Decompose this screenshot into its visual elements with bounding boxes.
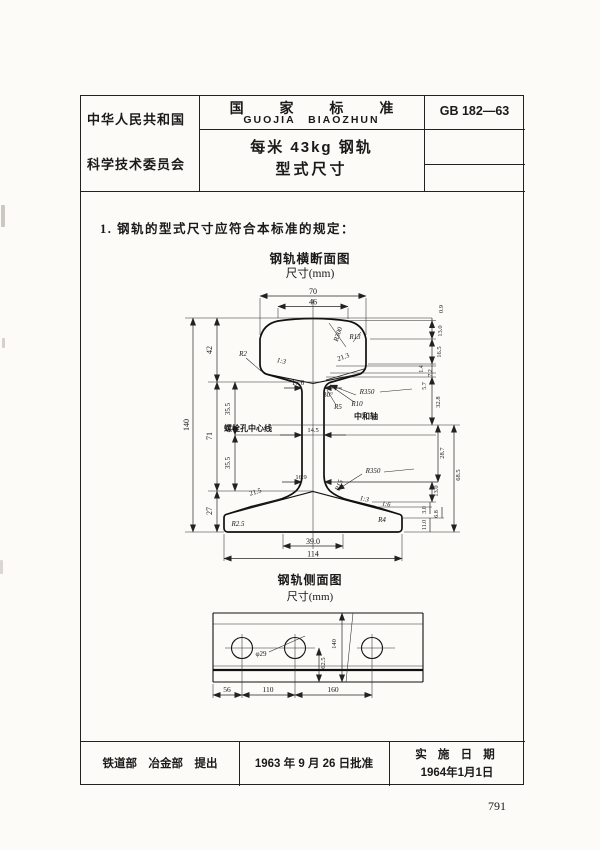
dim-label: 71 [205,432,214,440]
dim-label: 68.5 [455,469,462,480]
side-view-dim-labels: φ2962.514056110160 [223,639,339,694]
dim-label: R2.5 [230,520,245,528]
dim-label: 21.3 [336,351,351,363]
dim-label: 3.0 [422,506,428,514]
dim-label: R10 [350,400,363,408]
standard-label-pinyin: GUOJIA BIAOZHUN [199,114,424,126]
doc-title-line1: 每米 43kg 钢轨 [199,136,424,157]
dim-label: 46 [309,298,317,307]
dim-label: 35.5 [224,402,232,415]
dim-label: 110 [263,685,274,694]
dim-label: 5.7 [422,382,428,390]
dim-label: R13 [348,333,361,341]
dim-label: 39.0 [306,537,320,546]
dim-label: 1:6 [381,500,391,508]
footer-top-rule [81,741,525,742]
dim-label: 140 [182,419,191,431]
dim-label: R4 [377,516,386,524]
dim-label: R300 [332,326,345,344]
dim-label: 28.7 [439,447,446,459]
scan-artifact [0,560,3,574]
dim-label: 6.8 [434,510,440,518]
header-divider [199,129,525,130]
dim-label: R350 [359,388,375,396]
dim-label: φ29 [255,650,267,658]
footer-impl-date: 1964年1月1日 [389,764,525,780]
dim-label: 16.5 [436,346,443,357]
scan-artifact [2,338,5,348]
figure2-title: 钢轨侧面图 [240,571,380,588]
dim-label: 14.5 [307,427,318,434]
leader-lines [246,323,414,490]
dim-label: 62.5 [320,657,327,668]
rail-cross-section-figure: 70460.913.016.51.47.25.732.828.768.513.0… [180,285,492,563]
dim-label: R350 [365,467,381,475]
dim-label: 16.9 [295,474,306,481]
dim-label: 160 [327,685,339,694]
issuing-org-line2: 科学技术委员会 [87,154,195,173]
footer-impl-label: 实 施 日 期 [389,746,525,762]
page-number: 791 [488,799,506,814]
doc-title-line2: 型式尺寸 [199,158,424,179]
dim-label: 1.4 [419,365,425,373]
header-divider [424,164,525,165]
side-view-dimensions [213,613,372,698]
dim-label: 1:3 [276,356,287,366]
dim-label: R15 [333,478,345,493]
dim-label: 56 [223,685,231,694]
dim-label: 中和轴 [354,411,378,421]
clause-text: 1. 钢轨的型式尺寸应符合本标准的规定： [100,218,355,237]
side-view-outline [213,613,423,682]
dim-label: 21.5 [248,486,263,497]
dim-label: 13.0 [437,325,444,336]
dim-label: R5 [333,403,342,411]
dim-label: 螺栓孔中心线 [224,423,272,433]
dim-label: R2 [238,350,247,358]
dim-label: 17.6 [292,379,305,387]
dim-label: 11.0 [422,520,428,530]
dim-label: 114 [307,550,319,559]
header-bottom-rule [81,191,525,192]
dim-label: 140 [331,639,338,649]
footer-approval: 1963 年 9 月 26 日批准 [239,755,389,771]
dim-label: 35.5 [224,456,232,469]
dim-label: 27 [205,507,214,515]
issuing-org-line1: 中华人民共和国 [87,109,195,128]
scan-artifact [1,205,5,227]
dim-label: 70 [309,287,317,296]
standard-code: GB 182—63 [424,104,525,118]
figure1-unit: 尺寸(mm) [230,265,390,281]
dim-label: 7.2 [428,369,434,377]
dim-label: 30° [323,391,333,399]
dim-label: 0.9 [438,305,445,313]
dim-label: 13.0 [433,485,440,496]
footer-proposed-by: 铁道部 冶金部 提出 [81,755,239,771]
dim-label: 42 [205,346,214,354]
rail-side-view-figure: φ2962.514056110160 [195,600,435,715]
bolt-holes [225,634,395,662]
document-page: 中华人民共和国 科学技术委员会 国 家 标 准 GUOJIA BIAOZHUN … [0,0,600,850]
dim-label: 32.8 [435,396,442,407]
